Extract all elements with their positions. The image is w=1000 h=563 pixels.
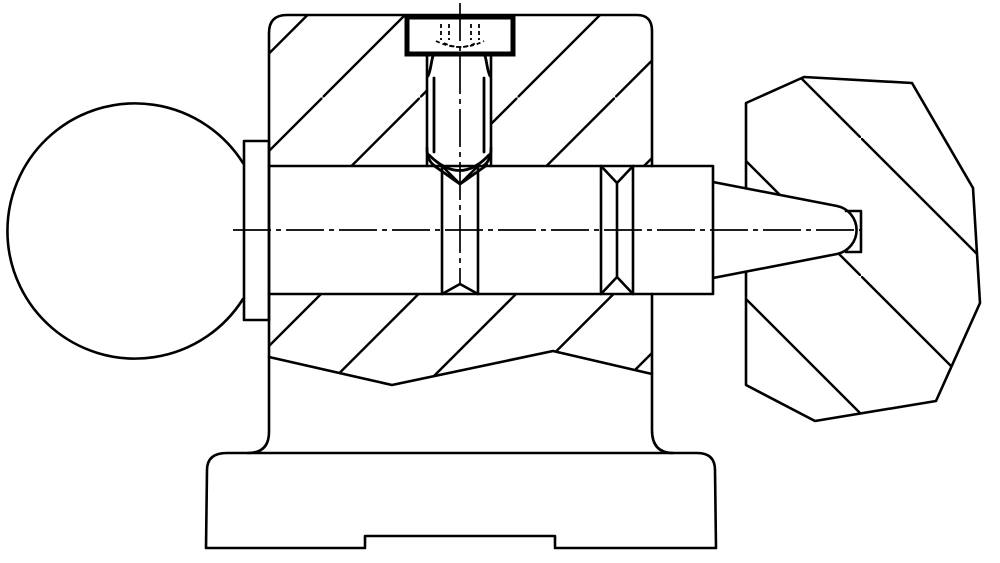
screw-hole-walls bbox=[427, 55, 491, 166]
ball-arc bbox=[7, 103, 243, 358]
base bbox=[206, 453, 716, 548]
section-drawing bbox=[0, 0, 1000, 563]
technical-drawing-canvas bbox=[0, 0, 1000, 563]
ball-handle bbox=[7, 103, 269, 358]
base-outline bbox=[206, 453, 716, 548]
knob bbox=[746, 77, 980, 421]
knob-hatch bbox=[746, 77, 980, 421]
